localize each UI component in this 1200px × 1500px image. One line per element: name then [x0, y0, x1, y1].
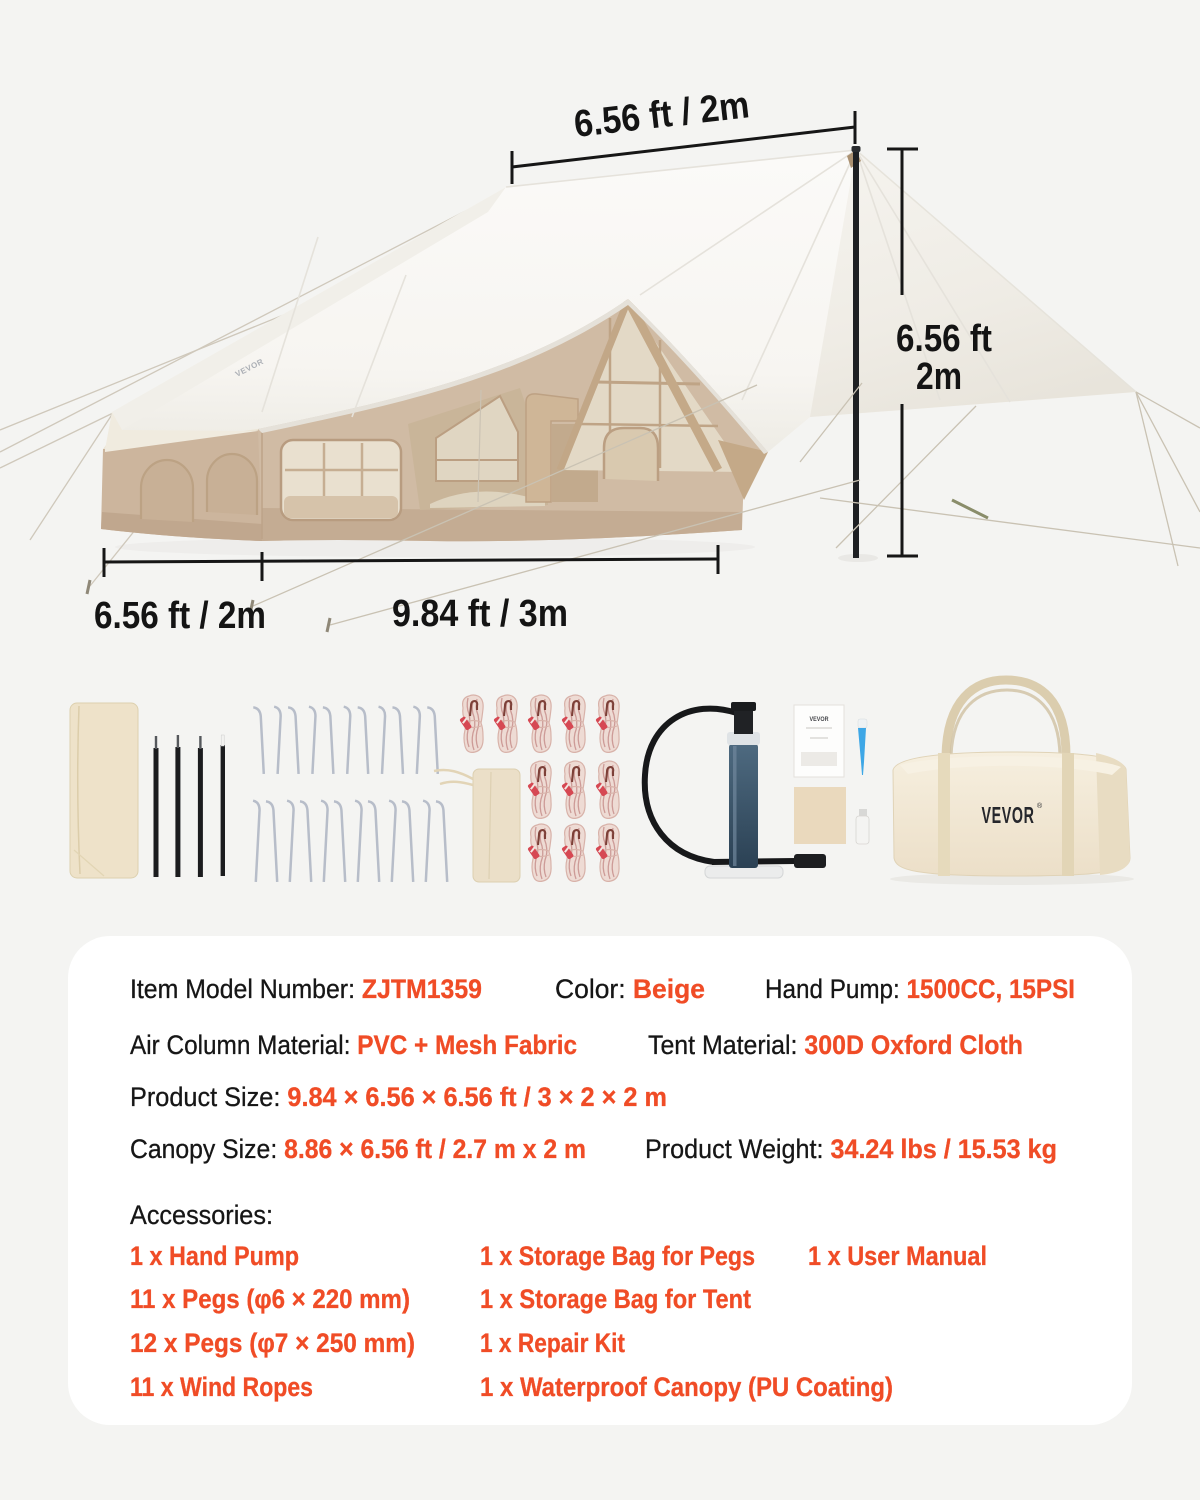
svg-text:9.84 ft / 3m: 9.84 ft / 3m [392, 593, 568, 635]
svg-text:6.56 ft / 2m: 6.56 ft / 2m [94, 595, 266, 637]
svg-text:VEVOR: VEVOR [810, 717, 830, 723]
svg-text:®: ® [1037, 802, 1043, 810]
svg-text:6.56 ft: 6.56 ft [896, 318, 992, 360]
svg-text:2m: 2m [916, 356, 962, 398]
svg-text:VEVOR: VEVOR [982, 802, 1035, 828]
svg-text:6.56 ft / 2m: 6.56 ft / 2m [572, 84, 752, 146]
